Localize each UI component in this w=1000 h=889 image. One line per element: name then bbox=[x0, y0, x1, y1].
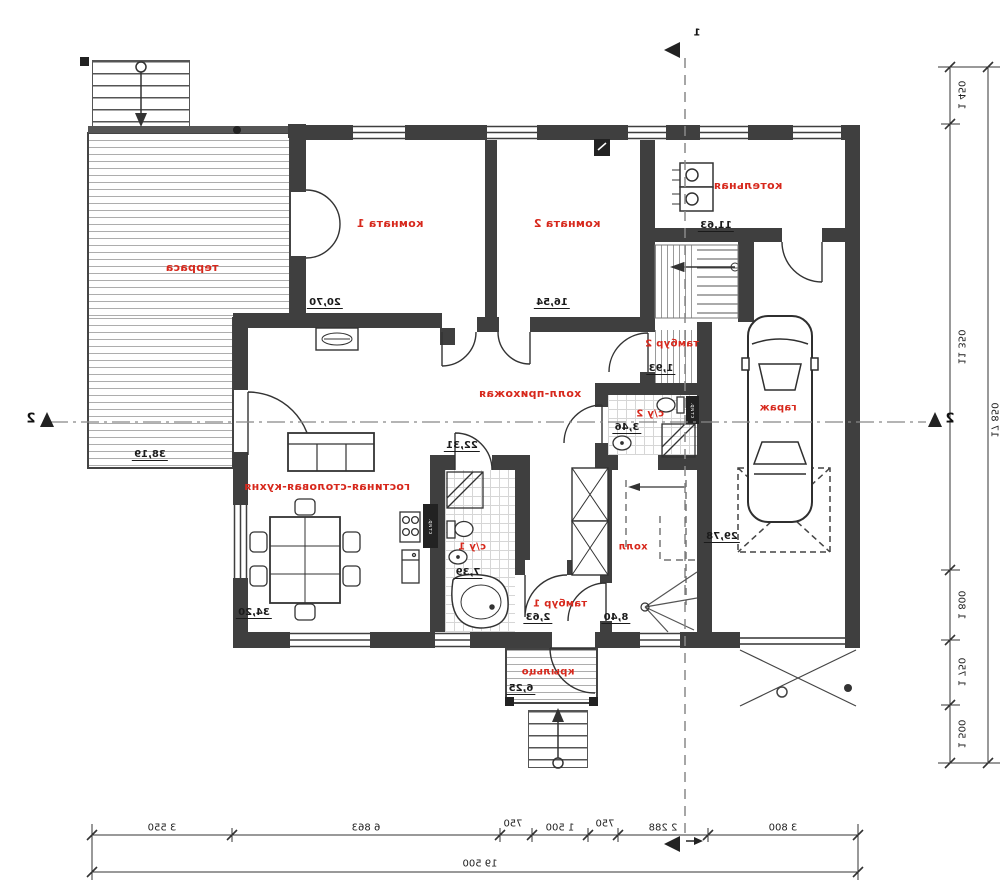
dim-bottom-0: 3 550 bbox=[148, 823, 177, 834]
sofa-icon bbox=[288, 433, 374, 471]
dim-bottom-1: 6 863 bbox=[352, 823, 381, 834]
room-area-living: 34,20 bbox=[236, 607, 272, 619]
room-label-terrace: терраса bbox=[165, 262, 218, 274]
room-label-porch: крыльцо bbox=[521, 667, 574, 678]
room-area-hall: 8,40 bbox=[602, 612, 631, 624]
dim-bottom-2: 750 bbox=[503, 819, 522, 830]
stairs-entry-arrow bbox=[135, 62, 147, 127]
room-label-vestibule1: тамбур 1 bbox=[533, 599, 587, 610]
fireplace-icon bbox=[316, 328, 358, 350]
bathtub-icon bbox=[452, 575, 508, 628]
washer-label-1: стир. bbox=[427, 518, 433, 534]
stairs-porch-arrow bbox=[505, 697, 598, 768]
dim-bottom-5: 2 288 bbox=[649, 823, 678, 834]
room-area-vestibule1: 2,63 bbox=[524, 612, 553, 624]
room-area-room1: 20,70 bbox=[307, 297, 343, 309]
room-label-wc1: с/у 1 bbox=[458, 542, 486, 553]
room-label-room2: комната 2 bbox=[533, 218, 600, 230]
toilet-icon-1 bbox=[447, 521, 473, 538]
fridge-icon bbox=[402, 550, 419, 583]
dim-right-2: 1 800 bbox=[956, 591, 967, 620]
terrace-outline bbox=[88, 133, 290, 468]
dim-right-4: 1 500 bbox=[956, 720, 967, 749]
terrace-railing bbox=[80, 57, 295, 134]
room-area-boiler: 11,63 bbox=[698, 220, 734, 232]
room-area-room2: 16,54 bbox=[534, 297, 570, 309]
room-label-room1: комната 1 bbox=[356, 218, 423, 230]
room-area-wc2: 3,46 bbox=[613, 422, 642, 434]
boiler-icon bbox=[672, 163, 713, 211]
dim-right-0: 1 450 bbox=[956, 81, 967, 110]
floor-plan: терраса комната 1 комната 2 котельная та… bbox=[0, 0, 1000, 889]
room-label-hall: холл bbox=[618, 542, 647, 553]
dim-right-1: 11 350 bbox=[956, 330, 967, 365]
room-label-boiler: котельная bbox=[714, 180, 783, 192]
shower-icon-2 bbox=[662, 424, 695, 457]
car-icon bbox=[742, 316, 818, 522]
section-1-label-top: 1 bbox=[694, 28, 701, 39]
dim-right-total: 17 850 bbox=[989, 403, 1000, 438]
room-area-garage: 29,78 bbox=[704, 531, 740, 543]
room-label-vestibule2: тамбур 2 bbox=[645, 339, 699, 350]
dim-bottom-total: 19 500 bbox=[463, 859, 498, 870]
stairs-upper-icon bbox=[655, 245, 739, 318]
stove-icon bbox=[400, 512, 420, 542]
dim-bottom-4: 750 bbox=[595, 819, 614, 830]
room-area-terrace: 38,19 bbox=[132, 449, 168, 461]
room-label-hall-entry: холл-прихожая bbox=[479, 388, 582, 400]
section-2-label-left: 2 bbox=[26, 412, 35, 427]
dim-bottom-3: 1 500 bbox=[546, 823, 575, 834]
stairs-hall-icon bbox=[626, 480, 697, 632]
room-label-wc2: с/у 2 bbox=[636, 409, 664, 420]
section-2-label-right: 2 bbox=[945, 412, 954, 427]
room-area-wc1: 7,39 bbox=[454, 567, 483, 579]
plan-linework bbox=[0, 0, 1000, 889]
room-area-vestibule2: 1,93 bbox=[647, 363, 676, 375]
room-label-living: гостиная-столовая-кухня bbox=[244, 481, 410, 493]
dimension-lines bbox=[87, 62, 1000, 880]
room-area-porch: 6,25 bbox=[507, 683, 536, 695]
washer-label-2: стир. bbox=[689, 402, 695, 418]
dim-right-3: 1 750 bbox=[956, 658, 967, 687]
wardrobe-icon bbox=[572, 468, 608, 575]
shower-icon-1 bbox=[447, 472, 483, 508]
chimney-icon bbox=[594, 139, 610, 156]
room-area-hall-entry: 22,31 bbox=[444, 440, 480, 452]
dim-bottom-6: 3 800 bbox=[769, 823, 798, 834]
sink-icon-2 bbox=[613, 436, 631, 450]
dining-table-icon bbox=[250, 499, 360, 620]
room-label-garage: гараж bbox=[759, 403, 796, 414]
